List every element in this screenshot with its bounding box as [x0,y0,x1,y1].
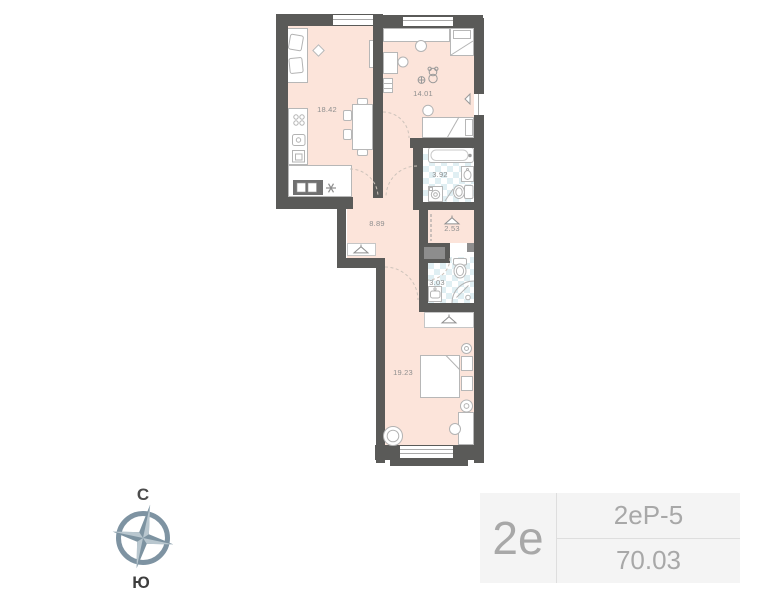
apartment-info-badge: 2е 2еР-5 70.03 [480,493,740,583]
bedroom-hanger-niche [424,312,474,328]
window-children [403,17,453,26]
bathroom-sink [461,166,474,182]
room-area-label-hallway: 8.89 [362,220,392,228]
shower-sink [428,286,442,302]
compass-south-label: Ю [132,573,150,592]
window-living [333,15,373,25]
pillow [465,119,473,136]
washing-machine [428,186,443,202]
apartment-total-area: 70.03 [557,539,740,584]
hallway-hanger-niche [347,243,376,256]
apartment-type: 2е [480,493,557,583]
wall-notch [467,243,474,252]
dining-table [352,104,373,150]
wall-bathroom-left [413,143,423,208]
dining-chair [343,110,352,121]
nightstand [461,376,473,391]
dining-chair [343,129,352,140]
pillow [453,30,471,39]
room-area-label-children: 14.01 [405,90,441,98]
stove [293,180,323,195]
room-area-label-bathroom: 3.92 [427,171,453,179]
wall-shower-bottom [419,303,474,312]
bathtub [428,147,474,163]
window-master [400,446,453,458]
room-area-label-wardrobe: 2.53 [439,225,465,233]
room-area-label-living: 18.42 [310,106,344,114]
dining-chair [357,149,368,156]
wall-lower-left [376,258,385,463]
floorplan-card[interactable]: С Ю 18.42 14.01 3.92 2.53 8.89 3.03 19.2… [0,0,760,600]
desk-strip [383,28,450,42]
wall-living-bottom [276,197,353,209]
compass-rose-icon: С Ю [113,485,174,592]
compass-north-label: С [137,485,149,504]
vent-shaft-inner [424,247,445,259]
corridor-upper-floor [383,138,413,202]
balcony-ledge [390,458,468,466]
nightstand [461,356,473,371]
bookshelf [383,78,393,93]
wall-wardrobe-left [419,202,428,245]
wall-right [474,18,484,463]
window-side [474,94,484,115]
master-bed [420,355,460,398]
room-area-label-shower: 3.03 [424,279,450,287]
corridor-lower-floor [385,256,419,302]
wall-left [276,14,288,209]
small-desk [383,52,398,74]
desk [458,412,474,445]
sofa [287,28,308,83]
room-area-label-master: 19.23 [387,369,419,377]
apartment-layout-code: 2еР-5 [557,493,740,539]
kitchen-cabinet-column [288,108,308,165]
wall-mid-vertical [373,14,383,198]
dining-chair [357,98,368,105]
